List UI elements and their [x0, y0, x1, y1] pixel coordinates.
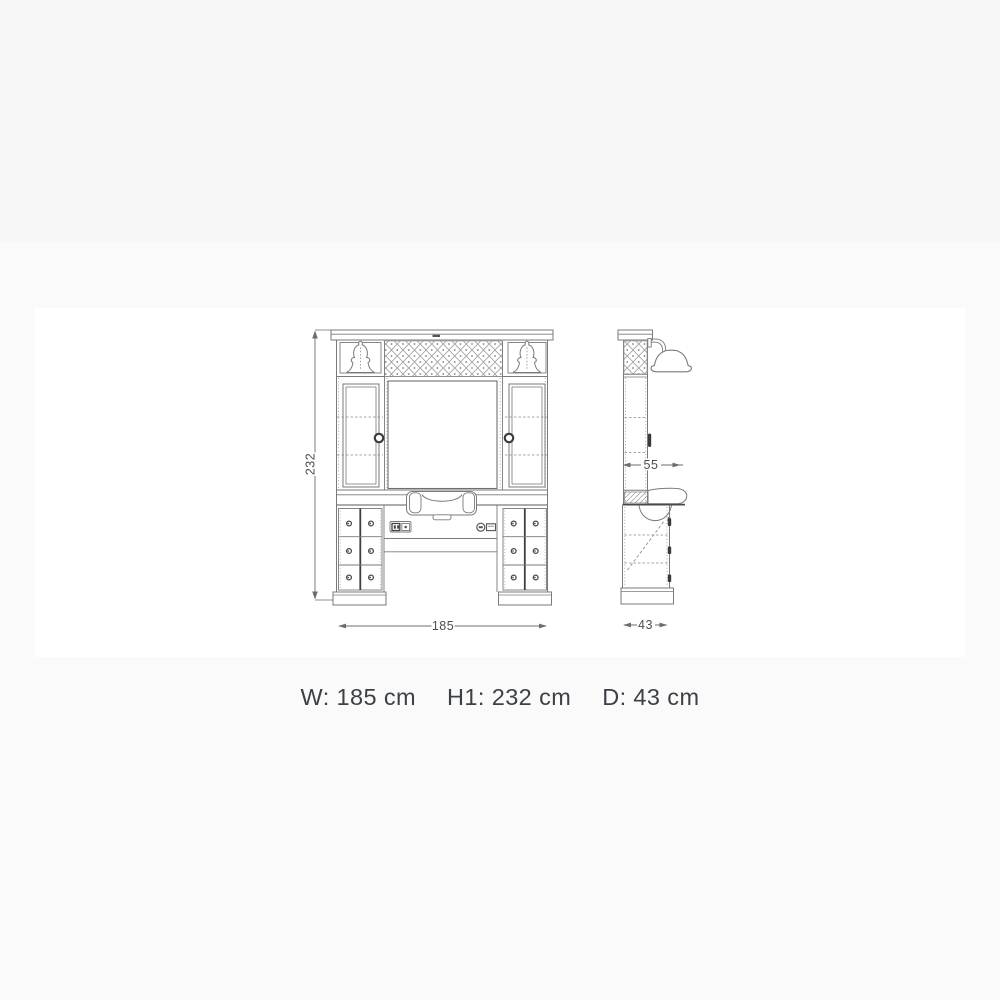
top-background-band [0, 0, 1000, 242]
mirror [388, 381, 497, 489]
technical-drawing: 185 232 55 43 [35, 308, 965, 657]
lattice-panel [385, 341, 503, 377]
side-cornice [618, 330, 653, 340]
side-view [618, 330, 691, 627]
side-basin [623, 488, 687, 522]
cornice [331, 330, 553, 340]
outlet-left [390, 522, 411, 533]
door-knob-right [505, 434, 513, 442]
sink [407, 492, 477, 520]
drawer-grid-left [339, 509, 383, 591]
drawer-grid-right [503, 509, 547, 591]
side-plinth [621, 588, 674, 604]
dim-height-label: 232 [304, 453, 318, 475]
wall-lamp-icon [648, 339, 692, 372]
dim-depth-base-label: 43 [638, 618, 653, 632]
caption-height: H1: 232 cm [447, 684, 571, 711]
side-lattice [624, 341, 647, 374]
caption-depth: D: 43 cm [602, 684, 699, 711]
dim-width-label: 185 [432, 619, 454, 633]
product-drawing-page: 185 232 55 43 W: 185 cm H1: 232 cm D: 43… [0, 0, 1000, 1000]
side-door-knob [648, 434, 651, 448]
door-knob-left [375, 434, 383, 442]
front-view [312, 330, 553, 628]
plinth-right [499, 592, 552, 605]
drawing-canvas: 185 232 55 43 [35, 308, 965, 657]
glass-door-left [343, 384, 379, 487]
ceiling-lamp-right-icon [513, 341, 541, 372]
glass-door-right [509, 384, 545, 487]
caption-width: W: 185 cm [301, 684, 416, 711]
ceiling-lamp-left-icon [347, 341, 375, 372]
plinth-left [333, 592, 386, 605]
dim-depth-upper-label: 55 [644, 458, 659, 472]
dimensions-caption: W: 185 cm H1: 232 cm D: 43 cm [0, 684, 1000, 711]
outlet-right [477, 523, 496, 531]
